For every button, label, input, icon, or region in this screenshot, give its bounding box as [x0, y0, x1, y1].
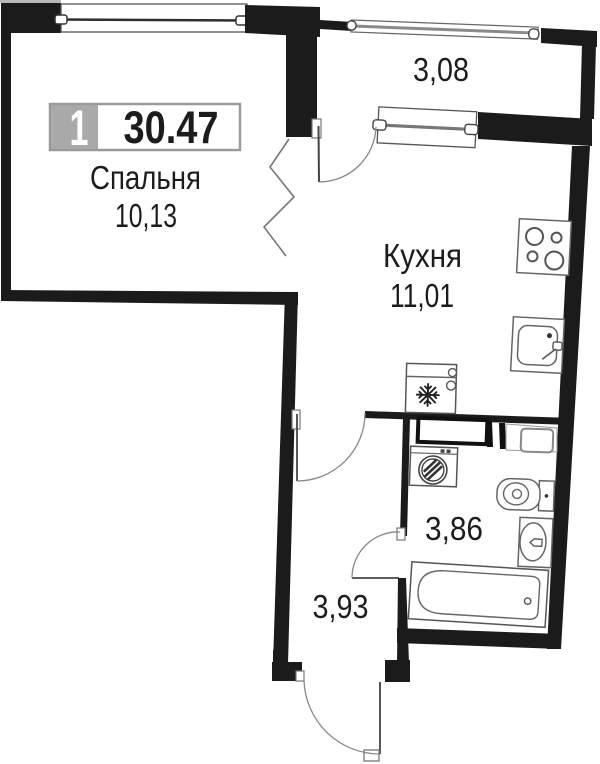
svg-text:1: 1 — [70, 100, 89, 156]
svg-text:3,08: 3,08 — [413, 51, 469, 88]
svg-text:Спальня: Спальня — [90, 159, 201, 196]
svg-text:10,13: 10,13 — [115, 197, 177, 234]
svg-text:3,93: 3,93 — [313, 588, 369, 625]
svg-text:3,86: 3,86 — [425, 510, 483, 547]
svg-text:11,01: 11,01 — [390, 277, 454, 314]
svg-text:Кухня: Кухня — [383, 237, 462, 274]
svg-text:30.47: 30.47 — [124, 102, 219, 153]
